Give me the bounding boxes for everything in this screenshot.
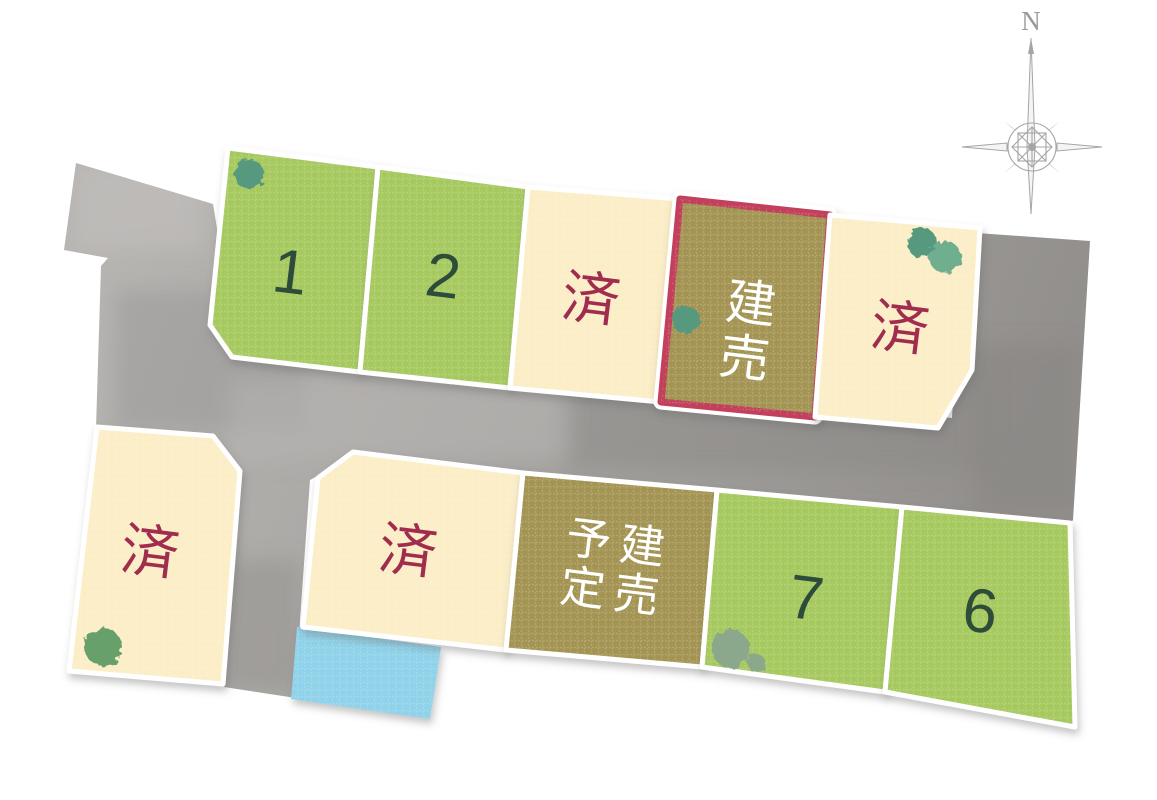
- lot-8-texture: [303, 452, 523, 650]
- tree-icon: [747, 654, 765, 672]
- tree-icon: [234, 159, 264, 189]
- lot-1-texture: [210, 148, 378, 372]
- compass-needle-north-tip: [1028, 38, 1034, 54]
- tree-icon: [712, 630, 750, 668]
- compass-needle-west: [962, 143, 1007, 151]
- tree-icon: [84, 628, 122, 666]
- compass-needle-south: [1027, 147, 1035, 214]
- site-plan-canvas: N: [0, 0, 1157, 800]
- lot-6-texture: [885, 507, 1075, 727]
- lot-2[interactable]: [360, 167, 528, 388]
- tree-icon: [672, 306, 700, 334]
- site-plan-map: N 1 2 済 建売 済 済 済 建売 予定 7 6: [0, 0, 1157, 800]
- lot-1[interactable]: [210, 148, 378, 372]
- lot-3-texture: [510, 187, 680, 402]
- compass-rose: N: [962, 6, 1102, 214]
- compass-center-dot: [1028, 143, 1036, 151]
- tree-icon: [929, 241, 961, 273]
- lot-3-sold[interactable]: [510, 187, 680, 402]
- lot-6[interactable]: [885, 507, 1075, 727]
- lot-2-texture: [360, 167, 528, 388]
- lot-8-sold[interactable]: [303, 452, 523, 650]
- compass-needle-east: [1057, 143, 1102, 151]
- lot-9-built-for-sale-planned[interactable]: [506, 473, 717, 667]
- compass-north-label: N: [1021, 6, 1041, 36]
- lot-9-texture: [506, 473, 717, 667]
